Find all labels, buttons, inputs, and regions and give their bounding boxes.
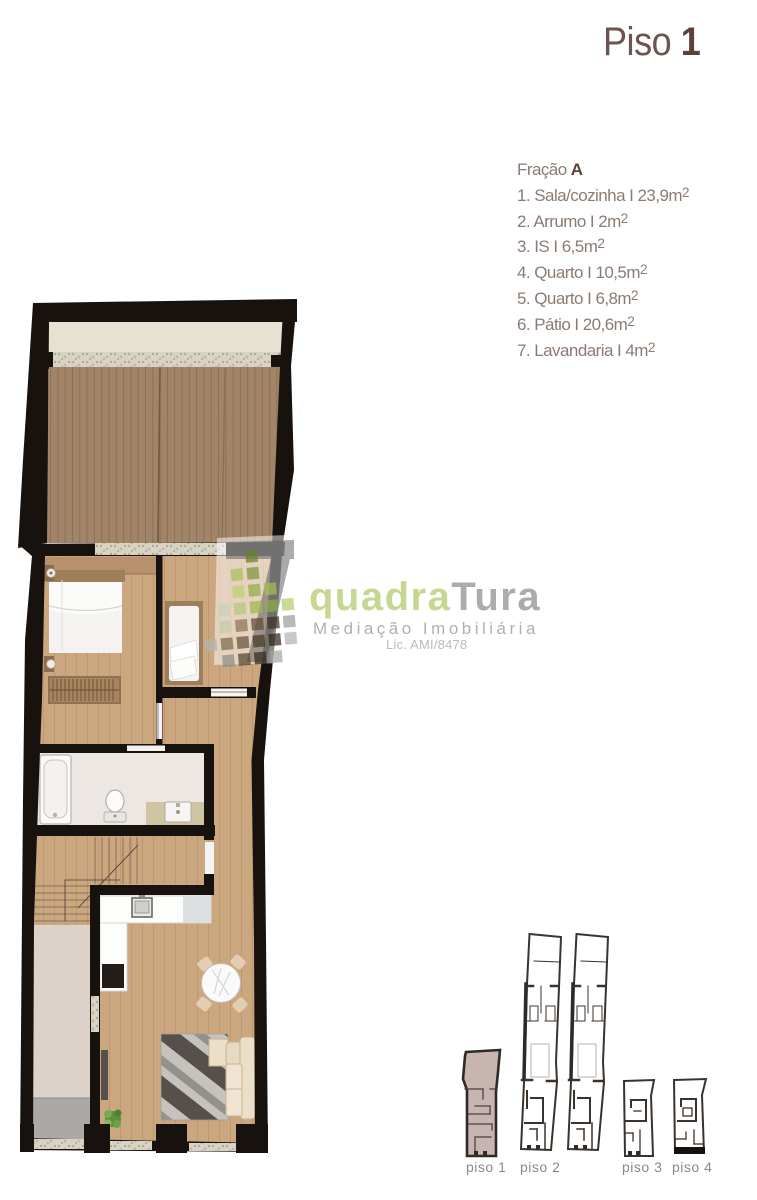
- svg-text:quadraTura: quadraTura: [309, 575, 541, 619]
- svg-text:Mediação Imobiliária: Mediação Imobiliária: [313, 619, 539, 638]
- svg-text:Lic. AMI/8478: Lic. AMI/8478: [386, 637, 467, 652]
